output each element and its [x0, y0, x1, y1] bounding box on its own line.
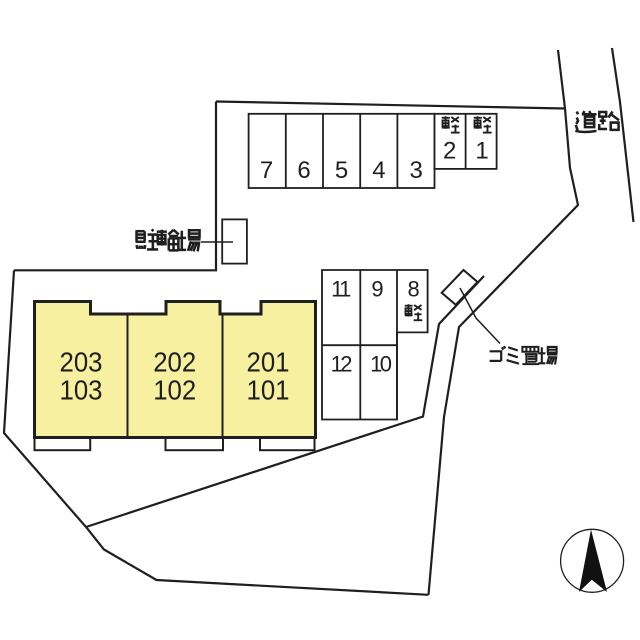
svg-text:102: 102 [153, 374, 196, 405]
svg-text:103: 103 [60, 374, 103, 405]
svg-text:8: 8 [407, 276, 419, 301]
svg-text:2: 2 [340, 352, 352, 377]
svg-text:2: 2 [443, 138, 456, 165]
svg-text:1: 1 [339, 276, 351, 301]
svg-text:201: 201 [247, 346, 290, 377]
svg-text:202: 202 [153, 346, 196, 377]
svg-text:6: 6 [297, 157, 310, 184]
svg-text:203: 203 [60, 346, 103, 377]
svg-text:7: 7 [260, 157, 273, 184]
svg-text:3: 3 [410, 157, 423, 184]
svg-text:5: 5 [335, 157, 348, 184]
svg-text:9: 9 [371, 276, 383, 301]
svg-text:1: 1 [475, 138, 488, 165]
svg-text:101: 101 [247, 374, 290, 405]
svg-text:4: 4 [372, 157, 385, 184]
svg-text:0: 0 [380, 352, 392, 377]
